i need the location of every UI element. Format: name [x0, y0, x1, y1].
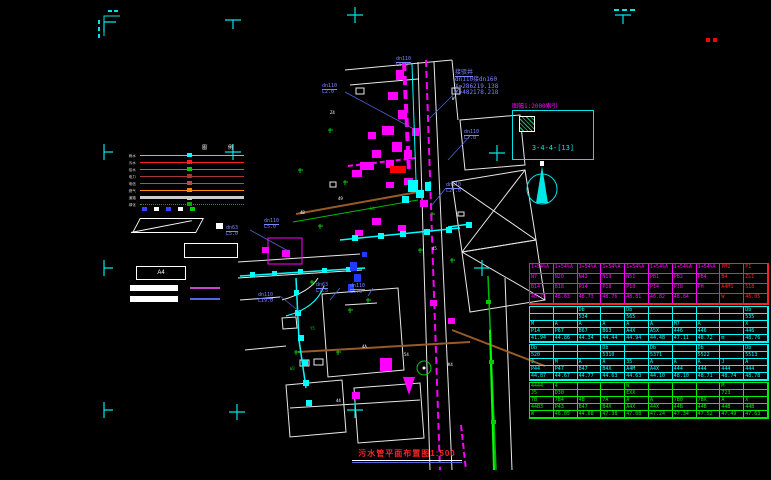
table-cell: 44B	[673, 404, 697, 411]
table-cell: 48.74	[530, 294, 554, 304]
table-cell: 4	[554, 383, 578, 390]
table-cell: 41.94	[530, 335, 554, 342]
grid-mark	[615, 15, 631, 24]
table-cell: P43	[554, 404, 578, 411]
pipe-length: L5.0	[396, 62, 408, 68]
table-cell	[649, 307, 673, 314]
table-cell: A	[601, 321, 625, 328]
table-cell: P47	[554, 366, 578, 373]
table-cell: A	[625, 321, 649, 328]
table-cell: Db	[625, 307, 649, 314]
table-cell: 44.86	[554, 335, 578, 342]
legend-ramp-symbol	[132, 218, 204, 233]
legend-bar-1	[130, 285, 178, 291]
table-cell: Db	[744, 307, 768, 314]
table-cell: 48.72	[697, 335, 721, 342]
legend-symbol	[178, 207, 183, 211]
pipe-length: L2.0	[322, 89, 334, 95]
table-cell	[578, 383, 602, 390]
table-cell: 47.11	[673, 335, 697, 342]
title-underline	[352, 460, 462, 461]
table-cell: 44X	[649, 404, 673, 411]
table-cell: A5X	[649, 328, 673, 335]
table-cell: m	[720, 335, 744, 342]
table-cell: 444	[697, 366, 721, 373]
table-cell: 1+54%A	[554, 264, 578, 274]
table-cell: P14	[578, 284, 602, 294]
legend-item-line	[140, 155, 244, 156]
table-cell: 1+54%A	[697, 264, 721, 274]
legend-item-line	[140, 162, 244, 163]
table-cell: PB2	[673, 274, 697, 284]
table-cell: M	[720, 383, 744, 390]
table-cell: 444	[720, 366, 744, 373]
table-cell: 44.48	[649, 335, 673, 342]
table-cell: 48.71	[697, 373, 721, 380]
table-cell	[673, 352, 697, 359]
table-cell: PB1	[649, 274, 673, 284]
table-cell: N42	[578, 274, 602, 284]
table-cell: B18	[554, 284, 578, 294]
map-annotation: 54	[404, 352, 409, 357]
table-cell	[578, 345, 602, 352]
table-cell: A	[601, 359, 625, 366]
legend-symbol	[154, 207, 159, 211]
table-cell	[578, 352, 602, 359]
table-cell: A	[697, 359, 721, 366]
table-cell: X	[744, 397, 768, 404]
table-cell: Db	[697, 345, 721, 352]
legend-item-line	[140, 169, 244, 170]
table-cell: 44B	[697, 404, 721, 411]
table-cell: Db	[601, 345, 625, 352]
table-cell	[697, 307, 721, 314]
table-cell: 5513	[744, 352, 768, 359]
table-cell	[601, 383, 625, 390]
table-cell: Db	[744, 345, 768, 352]
table-cell: B47	[578, 366, 602, 373]
table-cell: A	[744, 359, 768, 366]
table-cell: 48.84	[673, 294, 697, 304]
table-cell	[673, 345, 697, 352]
table-cell: 7BX	[697, 397, 721, 404]
connection-point-annotation: 接驳井 dn110接dn160 X=286219.138 Y=482178.21…	[455, 70, 498, 96]
table-cell: 48.10	[673, 373, 697, 380]
table-cell: A4M	[625, 366, 649, 373]
table-cell: A	[554, 321, 578, 328]
table-cell: 534	[578, 314, 602, 321]
annotation-y: Y=482178.218	[455, 90, 498, 96]
table-cell: 7B4	[554, 397, 578, 404]
table-cell: PH	[697, 284, 721, 294]
table-cell: 48.76	[744, 335, 768, 342]
legend-item-line	[140, 183, 244, 184]
table-cell: B67	[578, 328, 602, 335]
grid-mark	[104, 144, 113, 160]
table-cell: 47.34	[673, 411, 697, 418]
pipe-length: L19.0	[258, 298, 273, 304]
table-cell: 35	[625, 359, 649, 366]
legend-bar-2	[130, 296, 178, 302]
table-cell: 48.81	[625, 294, 649, 304]
table-cell: 48.76	[601, 294, 625, 304]
table-section: 1+54%A1+54%A1+54%A1+54%A1+54%A1+54%A1+54…	[529, 263, 769, 305]
table-section: DbDbDb534565535MAAAAAM7AXP14P67B67B63A4X…	[529, 306, 769, 343]
table-cell: 444	[673, 366, 697, 373]
table-cell: P67	[554, 328, 578, 335]
table-cell: A	[649, 321, 673, 328]
table-cell: J	[720, 359, 744, 366]
legend-rect-symbol	[184, 243, 238, 258]
map-annotation: 49	[338, 196, 343, 201]
table-cell: 5371	[649, 352, 673, 359]
legend-item-symbol	[187, 174, 192, 178]
table-cell: P18	[601, 284, 625, 294]
legend-magenta-line	[190, 287, 220, 289]
legend-a4-box: A4	[136, 266, 186, 280]
table-cell: 5310	[601, 352, 625, 359]
grid-mark	[104, 260, 113, 276]
table-cell: 535	[744, 314, 768, 321]
table-cell: 47.63	[744, 411, 768, 418]
table-cell: PB4	[697, 274, 721, 284]
table-cell: 44.63	[625, 373, 649, 380]
legend-line-items: 雨水 污水 给水 电力 电信 燃气 道路 绿化	[128, 146, 244, 208]
legend-item: 给水	[128, 166, 244, 173]
table-cell: A	[720, 397, 744, 404]
map-annotation: 45	[432, 246, 437, 251]
table-cell	[673, 314, 697, 321]
table-cell	[697, 390, 721, 397]
sheet-index-box[interactable]: 3-4-4-[13]	[512, 110, 594, 160]
pipe-label: dn110L5.0	[350, 284, 365, 296]
pipe-length: L7.0	[464, 135, 476, 141]
table-cell: 44.34	[578, 335, 602, 342]
table-cell: A	[649, 359, 673, 366]
table-cell: 520	[530, 352, 554, 359]
table-cell: S18	[744, 284, 768, 294]
table-cell: 44.68	[578, 411, 602, 418]
table-cell: 7B	[530, 397, 554, 404]
table-cell: 44.67	[554, 373, 578, 380]
legend-item-symbol	[187, 153, 192, 157]
table-cell: 46.05	[554, 411, 578, 418]
table-cell: 1+54%A	[625, 264, 649, 274]
table-cell: 44B	[744, 404, 768, 411]
table-cell: B63	[601, 328, 625, 335]
table-cell: 48.74	[720, 373, 744, 380]
table-cell: B4X	[601, 366, 625, 373]
legend-item: 污水	[128, 159, 244, 166]
table-cell	[625, 352, 649, 359]
table-cell	[720, 307, 744, 314]
table-cell: 48.73	[578, 294, 602, 304]
table-cell: Db	[578, 307, 602, 314]
table-cell: M	[530, 321, 554, 328]
table-cell	[649, 383, 673, 390]
table-cell: B4X	[601, 404, 625, 411]
legend-item-symbol	[187, 160, 192, 164]
table-cell: Db	[649, 345, 673, 352]
legend-item-label: 雨水	[129, 153, 140, 158]
table-cell: 4B	[578, 397, 602, 404]
table-cell: 44.87	[530, 373, 554, 380]
table-cell	[720, 328, 744, 335]
legend-extras: A4	[128, 206, 244, 302]
table-cell: 446	[744, 328, 768, 335]
map-annotation: W4	[370, 206, 375, 211]
table-cell: 48.63	[554, 294, 578, 304]
index-box-label: 图幅1:2000索引	[512, 101, 558, 110]
table-cell: J	[530, 359, 554, 366]
grid-mark	[104, 22, 116, 32]
table-cell	[673, 390, 697, 397]
table-cell: N51	[625, 274, 649, 284]
table-cell: M	[554, 359, 578, 366]
table-cell: 44.63	[601, 373, 625, 380]
table-cell: 7A	[601, 397, 625, 404]
legend-item-symbol	[187, 196, 192, 200]
legend-item: 燃气	[128, 187, 244, 194]
table-cell	[601, 390, 625, 397]
table-cell: A4X	[649, 366, 673, 373]
legend-item-label: 电信	[129, 181, 140, 186]
legend-symbol	[166, 207, 171, 211]
map-annotation: Z4	[330, 110, 335, 115]
table-cell: D30	[554, 390, 578, 397]
grid-mark	[347, 7, 363, 23]
pipe-label: dn110L5.0	[396, 57, 411, 69]
table-cell: 44.94	[625, 335, 649, 342]
table-cell	[625, 345, 649, 352]
drawing-title: 污水管平面布置图1:500	[352, 448, 462, 459]
hatch-swatch-icon	[519, 116, 535, 132]
legend-item: 道路	[128, 194, 244, 201]
table-cell: 444	[744, 366, 768, 373]
legend-symbol	[190, 207, 195, 211]
table-cell: 44.44	[601, 335, 625, 342]
legend-item-line	[140, 176, 244, 177]
table-cell: B47	[578, 404, 602, 411]
table-cell	[720, 352, 744, 359]
table-cell: 1+54%A	[673, 264, 697, 274]
legend-header-2: 例	[228, 144, 233, 151]
legend-square-symbol	[216, 223, 223, 229]
table-cell: 1+54%A	[649, 264, 673, 274]
map-annotation: 4B	[300, 210, 305, 215]
legend-item-label: 污水	[129, 160, 140, 165]
legend-item-symbol	[187, 167, 192, 171]
table-cell: A	[697, 321, 721, 328]
table-cell	[554, 352, 578, 359]
table-cell: 44.77	[578, 373, 602, 380]
table-section: DbDbDbDbDb5205310537155225513JMAA35AAAJA…	[529, 344, 769, 381]
table-cell: A	[578, 359, 602, 366]
table-cell	[744, 383, 768, 390]
table-cell: A4X	[625, 404, 649, 411]
table-cell: P18	[625, 284, 649, 294]
cad-drawing-canvas[interactable]: dn110L2.0dn110L5.0dn110L7.0dn110L27.0dn6…	[0, 0, 771, 480]
table-cell: PM2	[720, 264, 744, 274]
table-cell	[554, 314, 578, 321]
drawing-title-block: 污水管平面布置图1:500	[352, 448, 462, 463]
pipe-length: L7.5	[316, 288, 328, 294]
table-cell	[720, 314, 744, 321]
map-annotation: 44	[336, 398, 341, 403]
pipe-label: dn110L27.0	[446, 183, 461, 195]
table-cell: W	[720, 294, 744, 304]
table-cell: 446	[697, 328, 721, 335]
table-cell: 723	[720, 390, 744, 397]
legend-item: 雨水	[128, 152, 244, 159]
table-cell: N20	[554, 274, 578, 284]
table-cell	[530, 314, 554, 321]
title-underline-2	[352, 462, 462, 463]
sheet-index-code: 3-4-4-[13]	[513, 144, 593, 152]
grid-mark	[225, 20, 241, 29]
legend-item-label: 道路	[129, 195, 140, 200]
table-cell	[697, 294, 721, 304]
legend-header-1: 图	[202, 144, 207, 151]
map-annotation: W	[452, 96, 454, 101]
pipe-label: dn63L7.5	[316, 283, 328, 295]
table-cell: Db	[530, 345, 554, 352]
table-cell: X	[744, 321, 768, 328]
table-cell: M7	[673, 321, 697, 328]
table-cell: 47.24	[649, 411, 673, 418]
table-cell: 446	[673, 328, 697, 335]
table-cell: EXX	[625, 390, 649, 397]
table-cell: 47.08	[625, 411, 649, 418]
table-cell: P14	[530, 328, 554, 335]
table-cell: A4M1	[720, 284, 744, 294]
legend-symbol-row	[142, 206, 244, 212]
legend-item-label: 电力	[129, 174, 140, 179]
manhole-elevation-table[interactable]: 1+54%A1+54%A1+54%A1+54%A1+54%A1+54%A1+54…	[529, 263, 769, 420]
legend-item-label: 给水	[129, 167, 140, 172]
table-cell	[649, 314, 673, 321]
table-cell	[697, 383, 721, 390]
map-annotation: W3	[290, 366, 295, 371]
table-cell: ZL1	[744, 274, 768, 284]
map-annotation: K4	[448, 362, 453, 367]
legend-a4-label: A4	[157, 270, 164, 276]
table-cell	[601, 314, 625, 321]
legend-item: 电力	[128, 173, 244, 180]
legend-item: 电信	[128, 180, 244, 187]
table-cell: B14	[530, 284, 554, 294]
table-cell: P44	[530, 366, 554, 373]
table-cell: P1	[744, 264, 768, 274]
legend-item-symbol	[187, 188, 192, 192]
table-cell	[720, 345, 744, 352]
table-section: 44444WMJ5D30EXX7237B7B44B7AAA7B07BXAX44B…	[529, 382, 769, 419]
table-cell: 46.82	[649, 294, 673, 304]
table-cell: 565	[625, 314, 649, 321]
pipe-label: dn110L19.0	[258, 293, 273, 305]
table-cell: N19	[601, 274, 625, 284]
table-cell: B4	[720, 274, 744, 284]
table-cell: P18	[673, 284, 697, 294]
legend-blue-line	[190, 298, 220, 300]
table-cell: 48.78	[744, 373, 768, 380]
table-cell: 46.05	[744, 294, 768, 304]
grid-mark	[474, 260, 490, 276]
table-cell	[720, 321, 744, 328]
table-cell	[530, 307, 554, 314]
table-cell: 1+54%A	[578, 264, 602, 274]
map-annotation: Y5	[310, 326, 315, 331]
table-cell: 7B0	[673, 397, 697, 404]
table-cell	[744, 390, 768, 397]
pipe-length: L5.0	[350, 289, 362, 295]
table-cell	[649, 390, 673, 397]
table-cell	[697, 314, 721, 321]
table-cell: J5	[530, 390, 554, 397]
legend-item-line	[140, 190, 244, 191]
table-cell	[673, 307, 697, 314]
table-cell	[578, 390, 602, 397]
pipe-label: dn110L7.0	[464, 130, 479, 142]
table-cell: 44B3	[530, 404, 554, 411]
sheet-corner-mark	[104, 16, 120, 36]
legend-item-line	[140, 196, 244, 199]
grid-mark	[104, 402, 113, 418]
table-cell: A4X	[625, 328, 649, 335]
table-cell: P14	[649, 284, 673, 294]
table-cell: A	[625, 397, 649, 404]
table-cell: 47.52	[697, 411, 721, 418]
table-cell: 47.38	[601, 411, 625, 418]
legend-item-label: 燃气	[129, 188, 140, 193]
legend-item-line	[140, 204, 244, 205]
table-cell	[554, 345, 578, 352]
table-cell	[673, 383, 697, 390]
legend: 图 例 雨水 污水 给水 电力 电信 燃气 道路 绿化	[128, 146, 244, 208]
north-arrow-icon	[527, 161, 557, 204]
table-cell: A	[649, 397, 673, 404]
table-cell: 5522	[697, 352, 721, 359]
table-cell: A	[578, 321, 602, 328]
table-cell: W	[530, 411, 554, 418]
grid-mark	[229, 404, 245, 420]
table-cell: A	[673, 359, 697, 366]
table-cell	[601, 307, 625, 314]
pipe-label: dn110L2.0	[322, 84, 337, 96]
table-cell: W	[625, 383, 649, 390]
table-cell: 44B	[720, 404, 744, 411]
table-cell: 44.10	[649, 373, 673, 380]
table-cell: 4444	[530, 383, 554, 390]
table-cell: 1+54%A	[530, 264, 554, 274]
table-cell: N7	[530, 274, 554, 284]
map-annotation: 4A	[362, 344, 367, 349]
pipe-length: L5.0	[264, 224, 276, 230]
table-cell	[554, 307, 578, 314]
pipe-label: dn110L5.0	[264, 219, 279, 231]
table-cell: 1+54%A	[601, 264, 625, 274]
legend-symbol	[142, 207, 147, 211]
table-cell: 47.49	[720, 411, 744, 418]
pipe-length: L27.0	[446, 188, 461, 194]
legend-item-symbol	[187, 181, 192, 185]
grid-mark	[489, 145, 505, 161]
